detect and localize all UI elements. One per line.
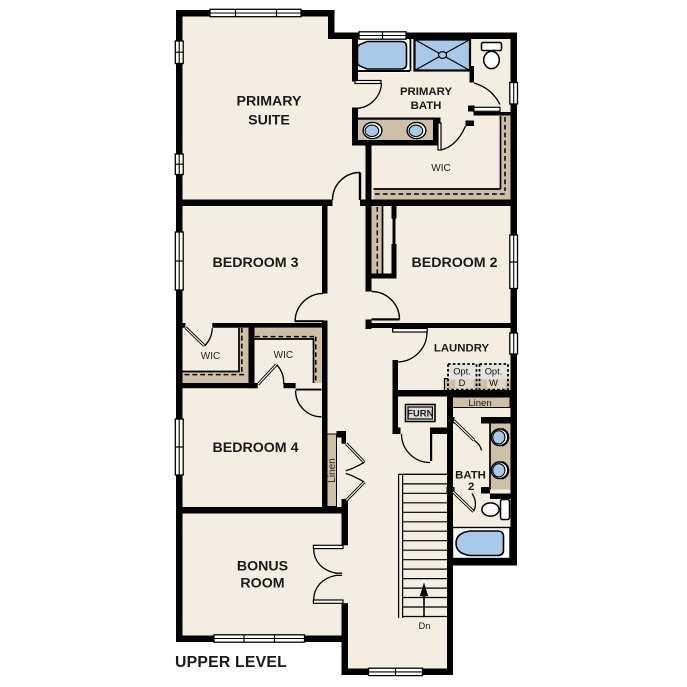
svg-text:Opt.: Opt. — [485, 366, 503, 376]
svg-text:D: D — [459, 378, 466, 388]
svg-text:W: W — [489, 378, 498, 388]
svg-text:BATH: BATH — [411, 100, 442, 112]
svg-text:SUITE: SUITE — [248, 113, 290, 129]
svg-text:2: 2 — [468, 481, 474, 493]
svg-text:PRIMARY: PRIMARY — [237, 94, 302, 110]
svg-text:ROOM: ROOM — [240, 576, 284, 592]
svg-text:WIC: WIC — [274, 350, 293, 361]
svg-text:BONUS: BONUS — [237, 559, 288, 575]
svg-text:BEDROOM 3: BEDROOM 3 — [213, 255, 299, 271]
svg-text:FURN: FURN — [407, 409, 434, 420]
svg-text:WIC: WIC — [431, 163, 450, 174]
svg-text:PRIMARY: PRIMARY — [400, 86, 453, 98]
svg-text:WIC: WIC — [201, 351, 220, 362]
svg-text:Dn: Dn — [419, 621, 431, 631]
svg-text:BATH: BATH — [455, 470, 486, 482]
svg-text:Linen: Linen — [327, 458, 338, 482]
svg-text:LAUNDRY: LAUNDRY — [434, 343, 490, 355]
svg-text:Linen: Linen — [468, 398, 491, 409]
svg-text:BEDROOM 4: BEDROOM 4 — [213, 440, 299, 456]
svg-text:UPPER LEVEL: UPPER LEVEL — [175, 654, 287, 671]
svg-text:BEDROOM 2: BEDROOM 2 — [412, 255, 498, 271]
svg-text:Opt.: Opt. — [453, 366, 471, 376]
